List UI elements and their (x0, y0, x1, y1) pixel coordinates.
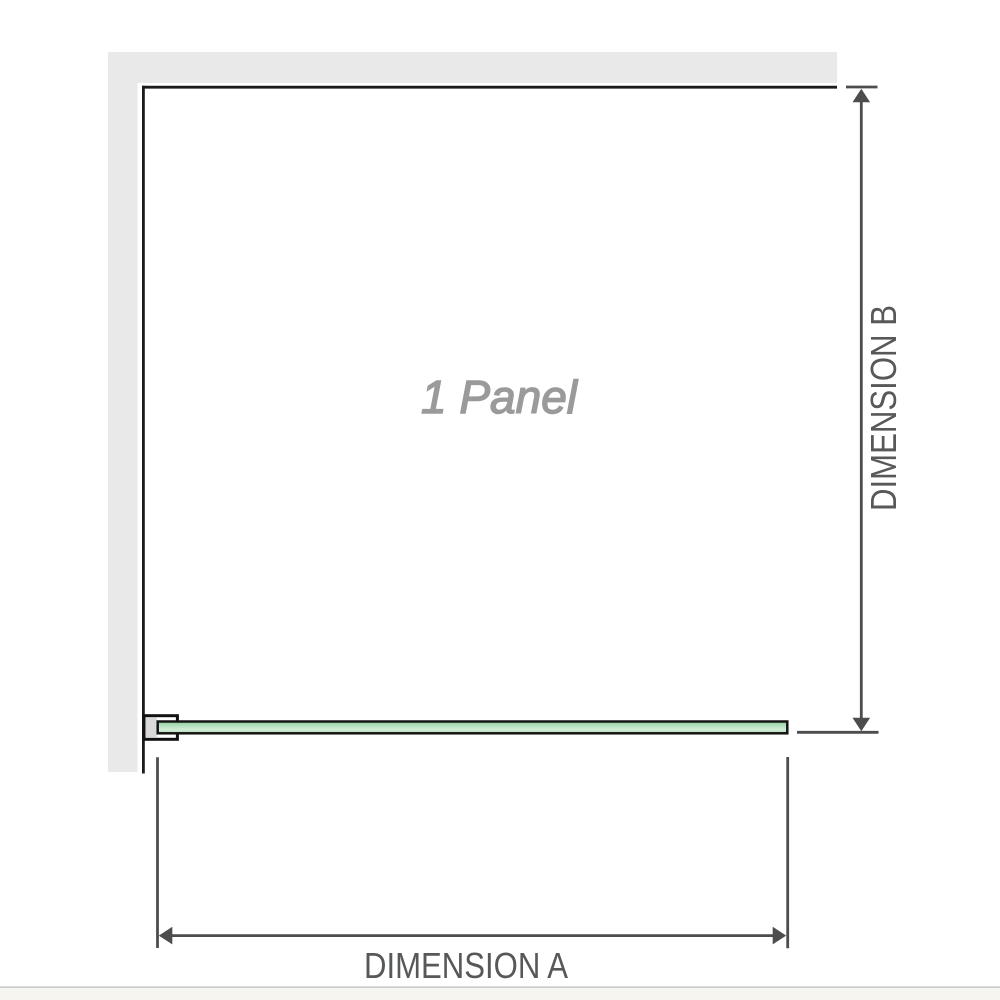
svg-text:1 Panel: 1 Panel (421, 371, 579, 423)
svg-text:DIMENSION A: DIMENSION A (364, 945, 568, 986)
svg-text:DIMENSION B: DIMENSION B (863, 305, 904, 511)
